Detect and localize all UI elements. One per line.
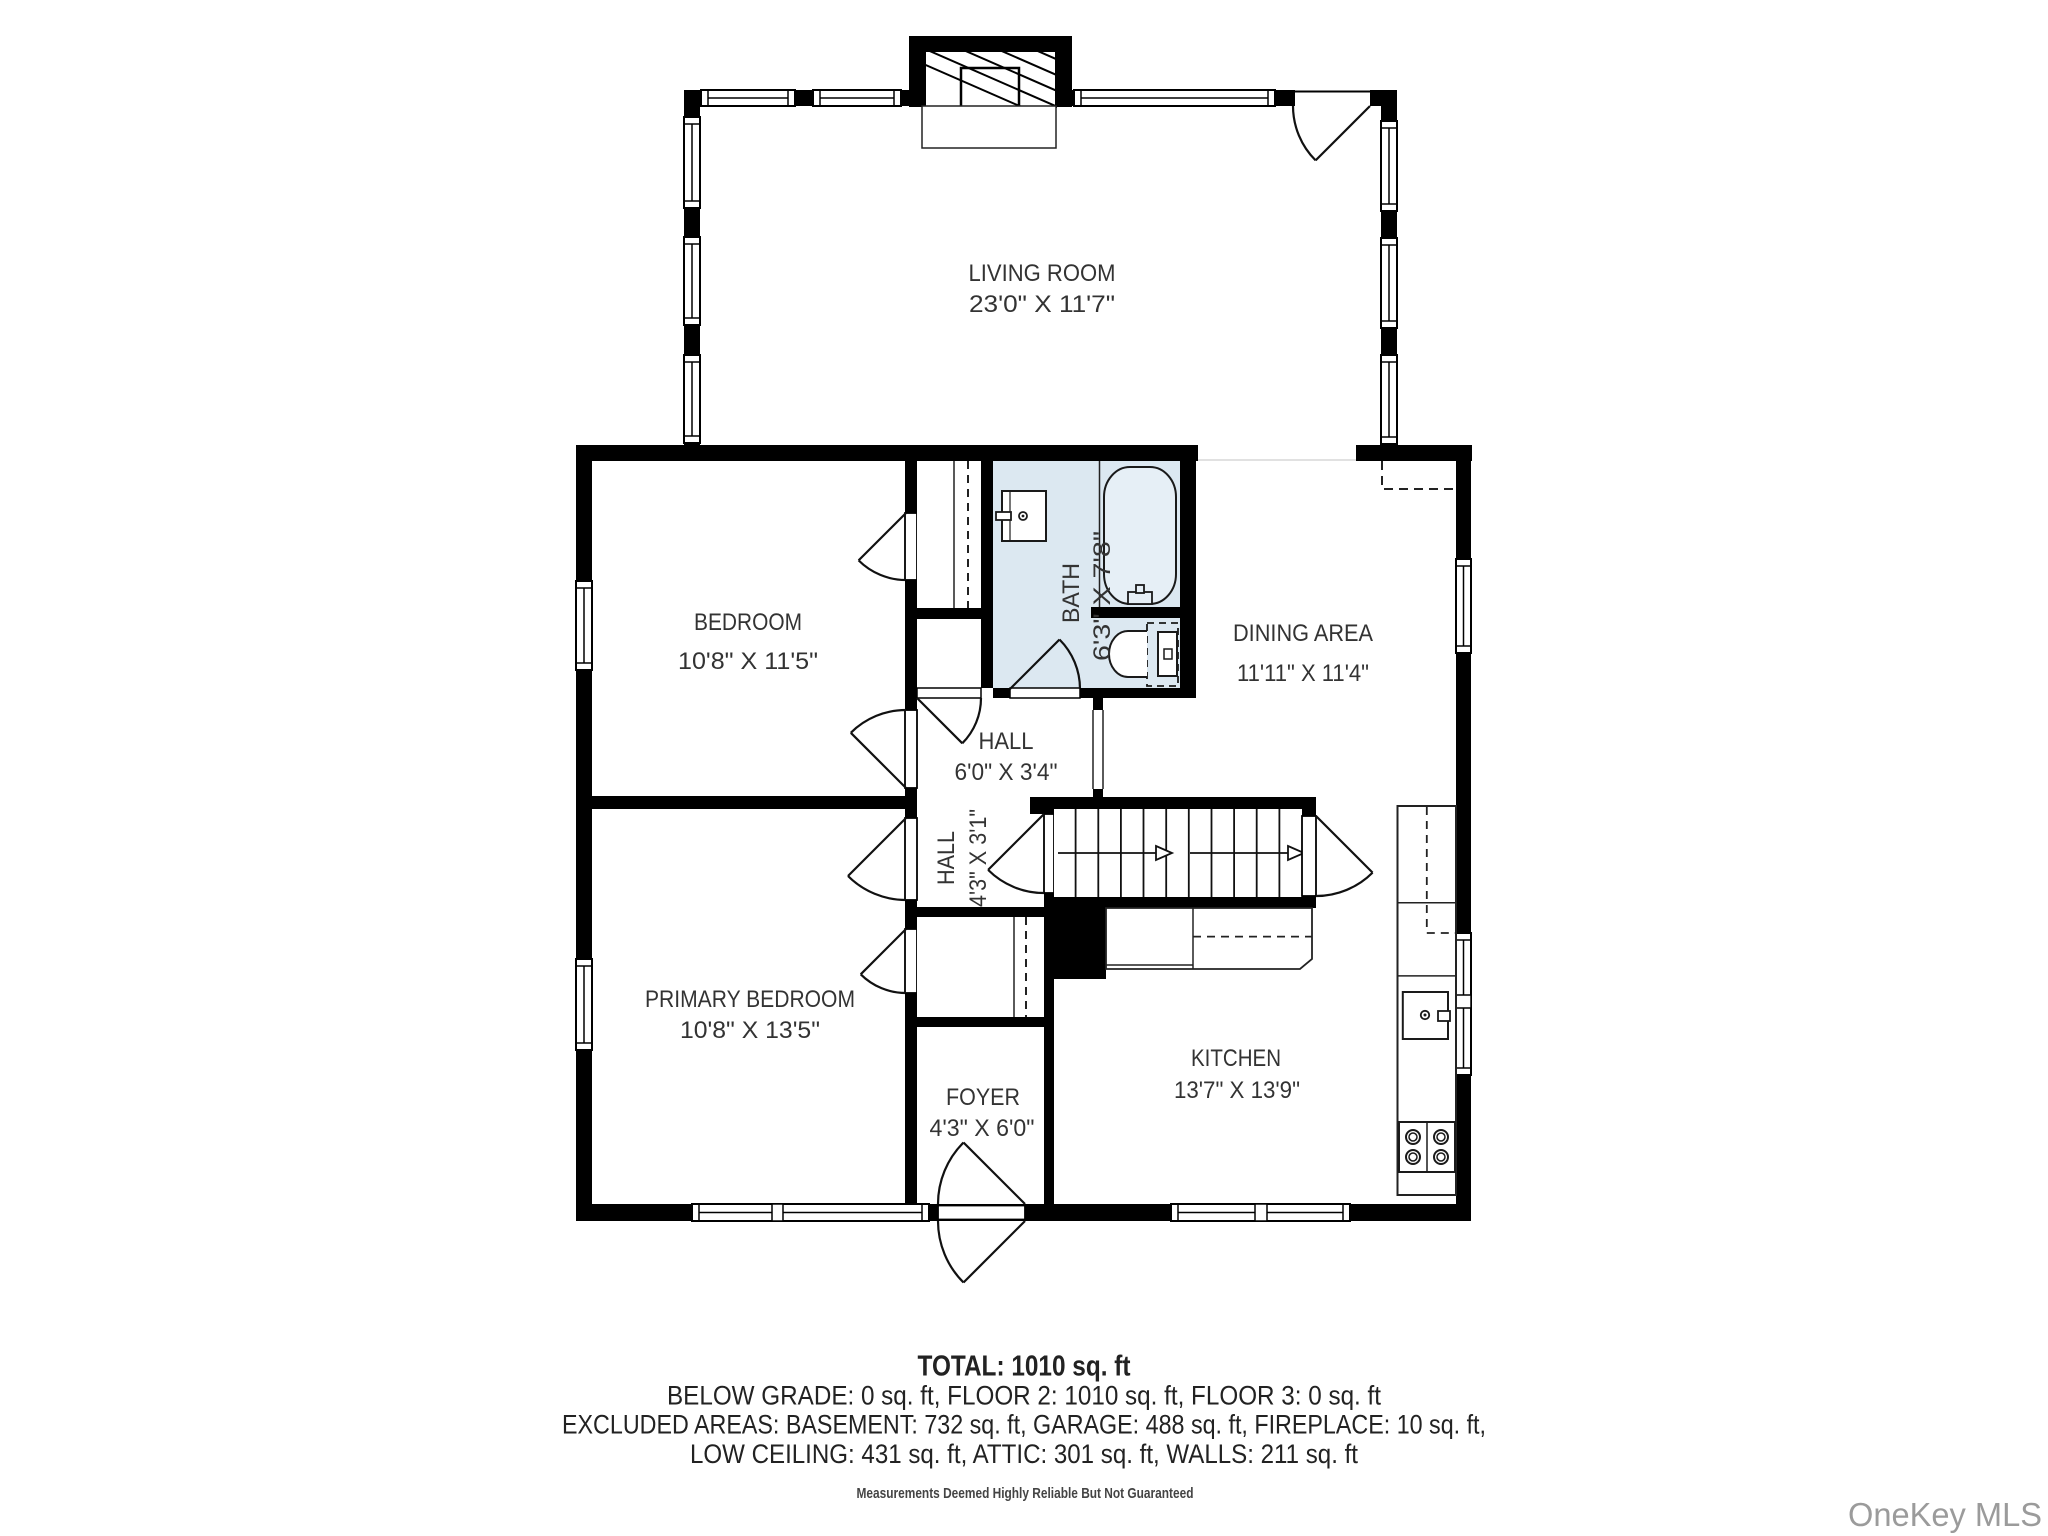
svg-text:6'3" X 7'8": 6'3" X 7'8"	[1089, 531, 1116, 661]
svg-text:EXCLUDED AREAS: BASEMENT: 732: EXCLUDED AREAS: BASEMENT: 732 sq. ft, GA…	[562, 1410, 1486, 1440]
svg-text:6'0" X 3'4": 6'0" X 3'4"	[955, 759, 1058, 786]
svg-text:10'8" X 11'5": 10'8" X 11'5"	[678, 648, 818, 675]
svg-text:23'0" X 11'7": 23'0" X 11'7"	[969, 291, 1115, 318]
svg-text:KITCHEN: KITCHEN	[1191, 1045, 1281, 1072]
svg-text:11'11" X 11'4": 11'11" X 11'4"	[1237, 660, 1369, 687]
svg-text:TOTAL: 1010 sq. ft: TOTAL: 1010 sq. ft	[918, 1351, 1131, 1383]
svg-text:PRIMARY BEDROOM: PRIMARY BEDROOM	[645, 986, 855, 1013]
svg-text:BELOW GRADE: 0 sq. ft, FLOOR 2: BELOW GRADE: 0 sq. ft, FLOOR 2: 1010 sq.…	[667, 1381, 1381, 1411]
svg-text:OneKey MLS: OneKey MLS	[1848, 1496, 2042, 1533]
svg-text:DINING AREA: DINING AREA	[1233, 620, 1373, 647]
svg-text:4'3" X 6'0": 4'3" X 6'0"	[930, 1115, 1035, 1142]
svg-text:BEDROOM: BEDROOM	[694, 609, 802, 636]
svg-text:Measurements Deemed Highly Rel: Measurements Deemed Highly Reliable But …	[857, 1485, 1194, 1502]
svg-text:BATH: BATH	[1058, 563, 1085, 623]
svg-text:10'8" X 13'5": 10'8" X 13'5"	[680, 1017, 820, 1044]
svg-text:13'7" X 13'9": 13'7" X 13'9"	[1174, 1077, 1300, 1104]
svg-text:LOW CEILING: 431 sq. ft, ATTIC: LOW CEILING: 431 sq. ft, ATTIC: 301 sq. …	[690, 1439, 1358, 1469]
svg-text:LIVING ROOM: LIVING ROOM	[969, 260, 1116, 287]
svg-text:FOYER: FOYER	[946, 1084, 1020, 1111]
svg-text:HALL: HALL	[933, 831, 960, 885]
svg-text:4'3" X 3'1": 4'3" X 3'1"	[965, 809, 992, 907]
svg-text:HALL: HALL	[979, 728, 1034, 755]
